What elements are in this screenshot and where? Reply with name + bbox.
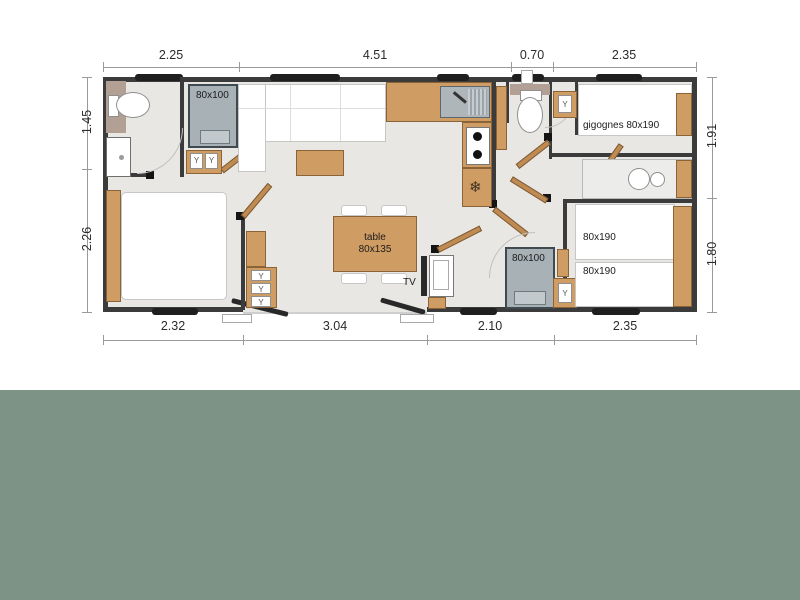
coffee-table <box>296 150 344 176</box>
window <box>152 308 198 315</box>
cabinet <box>676 160 692 198</box>
sink-icon: Y <box>558 283 572 303</box>
sofa-seam <box>239 108 385 109</box>
floorplan: 2.25 4.51 0.70 2.35 2.32 3.04 2.10 2.35 … <box>0 0 800 390</box>
window <box>596 74 642 81</box>
table-label: table 80x135 <box>333 232 417 256</box>
tv <box>421 256 427 296</box>
dim-left-1: 1.45 <box>80 97 94 147</box>
dim-top-4: 2.35 <box>599 48 649 62</box>
window <box>135 74 183 81</box>
dim-tick <box>82 77 92 78</box>
dim-bottom-4: 2.35 <box>600 319 650 333</box>
info-panel: Cottage CONFORT Mobil-home bardage bois … <box>0 390 800 600</box>
stove-burner <box>473 150 482 159</box>
dim-tick <box>82 169 92 170</box>
dim-tick <box>696 62 697 72</box>
chair <box>341 205 367 216</box>
dim-tick <box>243 335 244 345</box>
wall <box>241 218 245 310</box>
wall <box>549 153 694 157</box>
dim-tick <box>82 312 92 313</box>
window <box>460 308 497 315</box>
table-label-line2: 80x135 <box>359 244 392 255</box>
fridge-icon: ❄ <box>469 178 482 196</box>
stove-burner <box>473 132 482 141</box>
sofa-seam <box>340 85 341 141</box>
dim-right-1: 1.91 <box>705 111 719 161</box>
dim-top-3: 0.70 <box>507 48 557 62</box>
toilet <box>517 97 543 133</box>
dim-tick <box>707 312 717 313</box>
hanger-icon: Y <box>251 283 271 294</box>
dim-top-2: 4.51 <box>350 48 400 62</box>
cabinet <box>428 297 446 309</box>
dim-bottom-3: 2.10 <box>465 319 515 333</box>
window <box>270 74 340 81</box>
bed-headboard <box>676 93 692 136</box>
baby-body <box>628 168 650 190</box>
dim-line-bottom <box>103 340 697 341</box>
dim-tick <box>103 335 104 345</box>
dim-tick <box>696 335 697 345</box>
chair <box>381 205 407 216</box>
bed-headboard <box>106 190 121 302</box>
bed-2-label: 80x190 <box>583 266 616 277</box>
wall <box>563 199 694 203</box>
entry-step <box>222 314 252 323</box>
tall-cabinet <box>496 86 507 150</box>
entry-step <box>400 314 434 323</box>
dim-tick <box>427 335 428 345</box>
page: 2.25 4.51 0.70 2.35 2.32 3.04 2.10 2.35 … <box>0 0 800 600</box>
window <box>437 74 469 81</box>
bed-master <box>121 192 227 300</box>
table-label-line1: table <box>364 232 386 243</box>
vent <box>521 70 533 84</box>
washbasin-drain <box>119 155 124 160</box>
dim-tick <box>707 77 717 78</box>
bed-headboard <box>673 206 692 307</box>
tv-label: TV <box>403 277 416 288</box>
sink-icon: Y <box>558 95 572 113</box>
sink-icon: Y <box>190 153 203 169</box>
dim-tick <box>511 62 512 72</box>
toilet <box>116 92 150 118</box>
gigognes-label: gigognes 80x190 <box>580 119 662 132</box>
dim-tick <box>554 335 555 345</box>
bed-1-label: 80x190 <box>583 232 616 243</box>
wardrobe <box>246 231 266 267</box>
cabinet <box>557 249 569 277</box>
sink-icon: Y <box>205 153 218 169</box>
wall <box>180 77 184 177</box>
washbasin-inner <box>433 260 449 290</box>
kitchen-drainer <box>468 89 487 115</box>
dim-tick <box>707 198 717 199</box>
sofa-chaise <box>238 84 266 172</box>
shower-2-label: 80x100 <box>512 253 545 264</box>
dim-tick <box>103 62 104 72</box>
dim-left-2: 2.26 <box>80 214 94 264</box>
dim-bottom-2: 3.04 <box>310 319 360 333</box>
dim-top-1: 2.25 <box>146 48 196 62</box>
sofa-seam <box>290 85 291 141</box>
hanger-icon: Y <box>251 270 271 281</box>
shower-tray <box>514 291 546 305</box>
shower-1-label: 80x100 <box>196 90 229 101</box>
dim-right-2: 1.80 <box>705 229 719 279</box>
chair <box>341 273 367 284</box>
dim-line-top <box>103 67 697 68</box>
dim-tick <box>239 62 240 72</box>
hanger-icon: Y <box>251 296 271 307</box>
baby-head <box>650 172 665 187</box>
window <box>592 308 640 315</box>
dim-bottom-1: 2.32 <box>148 319 198 333</box>
shower-tray <box>200 130 230 144</box>
dim-tick <box>553 62 554 72</box>
